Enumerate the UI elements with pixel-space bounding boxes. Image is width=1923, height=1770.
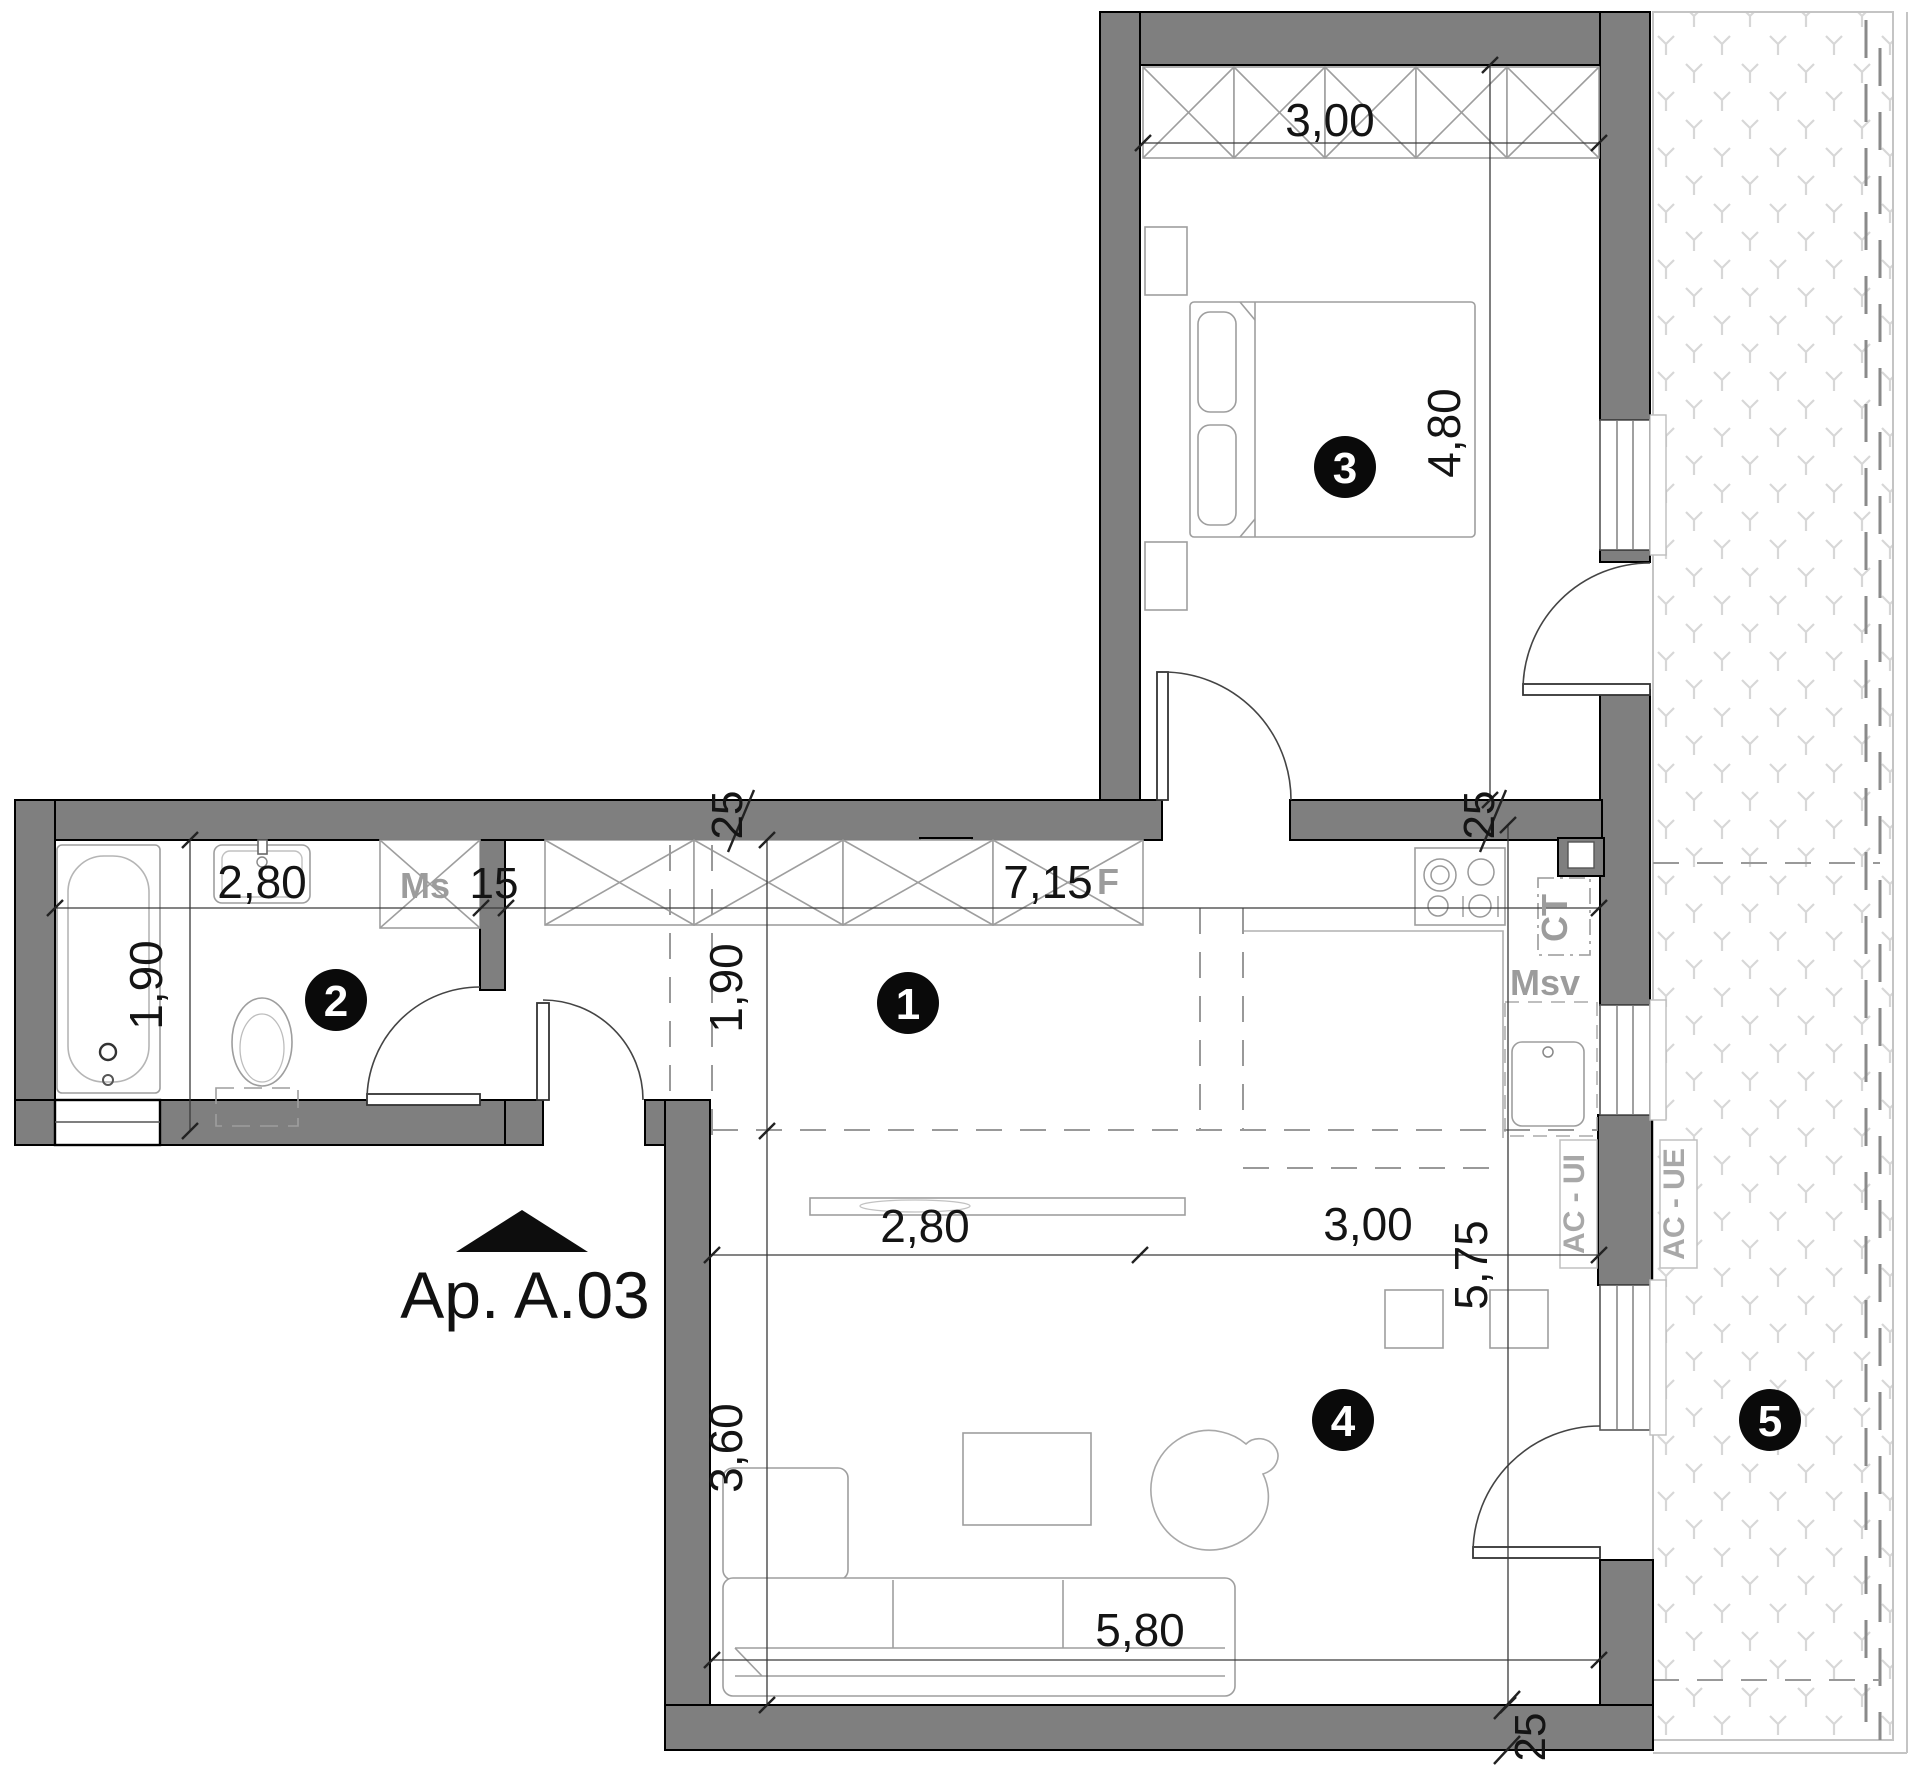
wall-bedroom-top xyxy=(1100,12,1650,65)
wall-bath-left xyxy=(15,800,55,1145)
wall-right-ac-pier xyxy=(1598,1115,1652,1285)
badge-room-1: 1 xyxy=(877,972,939,1034)
apartment-label: Ap. A.03 xyxy=(400,1258,650,1332)
room-4-number: 4 xyxy=(1331,1397,1356,1446)
dim-living-tv: 2,80 xyxy=(880,1200,970,1252)
ac-indoor-label: AC - UI xyxy=(1558,1154,1591,1254)
badge-room-2: 2 xyxy=(305,969,367,1031)
dim-living-dining: 3,00 xyxy=(1323,1198,1413,1250)
wall-corridor-top xyxy=(15,800,1162,840)
wall-bedroom-right-stub xyxy=(1600,550,1650,562)
badge-room-3: 3 xyxy=(1314,436,1376,498)
wall-entry-stub xyxy=(505,1100,543,1145)
dim-bath-depth: 1,90 xyxy=(120,940,172,1030)
wall-living-bottom xyxy=(665,1705,1653,1750)
pillow-2 xyxy=(1198,425,1236,525)
kitchen-counter-edge xyxy=(1243,931,1503,1138)
room-3-number: 3 xyxy=(1333,444,1357,493)
dim-hall-width: 1,90 xyxy=(700,943,752,1033)
coffee-table xyxy=(963,1433,1091,1525)
armchair xyxy=(1151,1430,1278,1550)
wall-entry-jamb xyxy=(645,1100,665,1145)
bedroom-door xyxy=(1157,672,1291,800)
bedroom-terrace-door xyxy=(1523,563,1650,695)
bathroom-window xyxy=(55,1100,160,1145)
living-terrace-door xyxy=(1473,1426,1600,1558)
bathroom-door xyxy=(367,987,480,1105)
dim-living-width: 5,80 xyxy=(1095,1604,1185,1656)
badge-room-5: 5 xyxy=(1739,1389,1801,1451)
dim-living-depth: 5,75 xyxy=(1445,1220,1497,1310)
pillow-1 xyxy=(1198,312,1236,412)
wall-right-mid xyxy=(1600,690,1650,1005)
wall-bedroom-bottom-right-of-door xyxy=(1290,800,1602,840)
floor-plan-drawing: AC - UI AC - UE 3,00 4,80 2,80 1,90 Ms 1… xyxy=(0,0,1923,1770)
dim-wall-top: 25 xyxy=(703,791,752,840)
room-1-number: 1 xyxy=(896,980,920,1029)
entry-door xyxy=(537,1000,643,1100)
wall-bath-bottom xyxy=(160,1100,505,1145)
apartment-title: Ap. A.03 xyxy=(400,1210,650,1332)
room-5-number: 5 xyxy=(1758,1397,1782,1446)
dim-wall-bottom: 25 xyxy=(1506,1713,1555,1762)
dim-bath-width: 2,80 xyxy=(217,856,307,908)
terrace-area xyxy=(1653,12,1907,1753)
doors xyxy=(367,563,1650,1558)
wall-bedroom-left xyxy=(1100,12,1140,840)
wall-bedroom-right-upper xyxy=(1600,12,1650,420)
dim-partition: 15 xyxy=(470,859,519,908)
living-window xyxy=(1600,1280,1666,1435)
label-fridge: F xyxy=(1097,861,1119,902)
ac-outdoor-label: AC - UE xyxy=(1658,1148,1691,1260)
label-msv: Msv xyxy=(1510,962,1580,1003)
bedroom-window xyxy=(1600,415,1666,555)
nightstand-top xyxy=(1145,227,1187,295)
dim-living-left-depth: 3,60 xyxy=(700,1403,752,1493)
dim-bedroom-length: 4,80 xyxy=(1418,388,1470,478)
terrace-hatch xyxy=(1653,12,1893,1740)
wall-bath-bottom-left-stub xyxy=(15,1100,55,1145)
tv-sideboard xyxy=(810,1198,1185,1215)
cooktop xyxy=(1415,848,1505,925)
nightstand-bottom xyxy=(1145,542,1187,610)
kitchen-niche xyxy=(1568,842,1594,868)
kitchen-sink xyxy=(1512,1042,1584,1126)
sink-faucet xyxy=(258,840,267,854)
kitchen-window xyxy=(1600,1000,1666,1120)
floor-plan-canvas: AC - UI AC - UE 3,00 4,80 2,80 1,90 Ms 1… xyxy=(0,0,1923,1770)
badge-room-4: 4 xyxy=(1312,1389,1374,1451)
dim-wall-right: 25 xyxy=(1455,791,1504,840)
dim-hall-length: 7,15 xyxy=(1003,856,1093,908)
label-ms: Ms xyxy=(400,865,450,906)
label-ct: CT xyxy=(1534,894,1575,942)
dim-bedroom-width: 3,00 xyxy=(1285,94,1375,146)
entry-arrow-icon xyxy=(456,1210,588,1252)
room-2-number: 2 xyxy=(324,977,348,1026)
